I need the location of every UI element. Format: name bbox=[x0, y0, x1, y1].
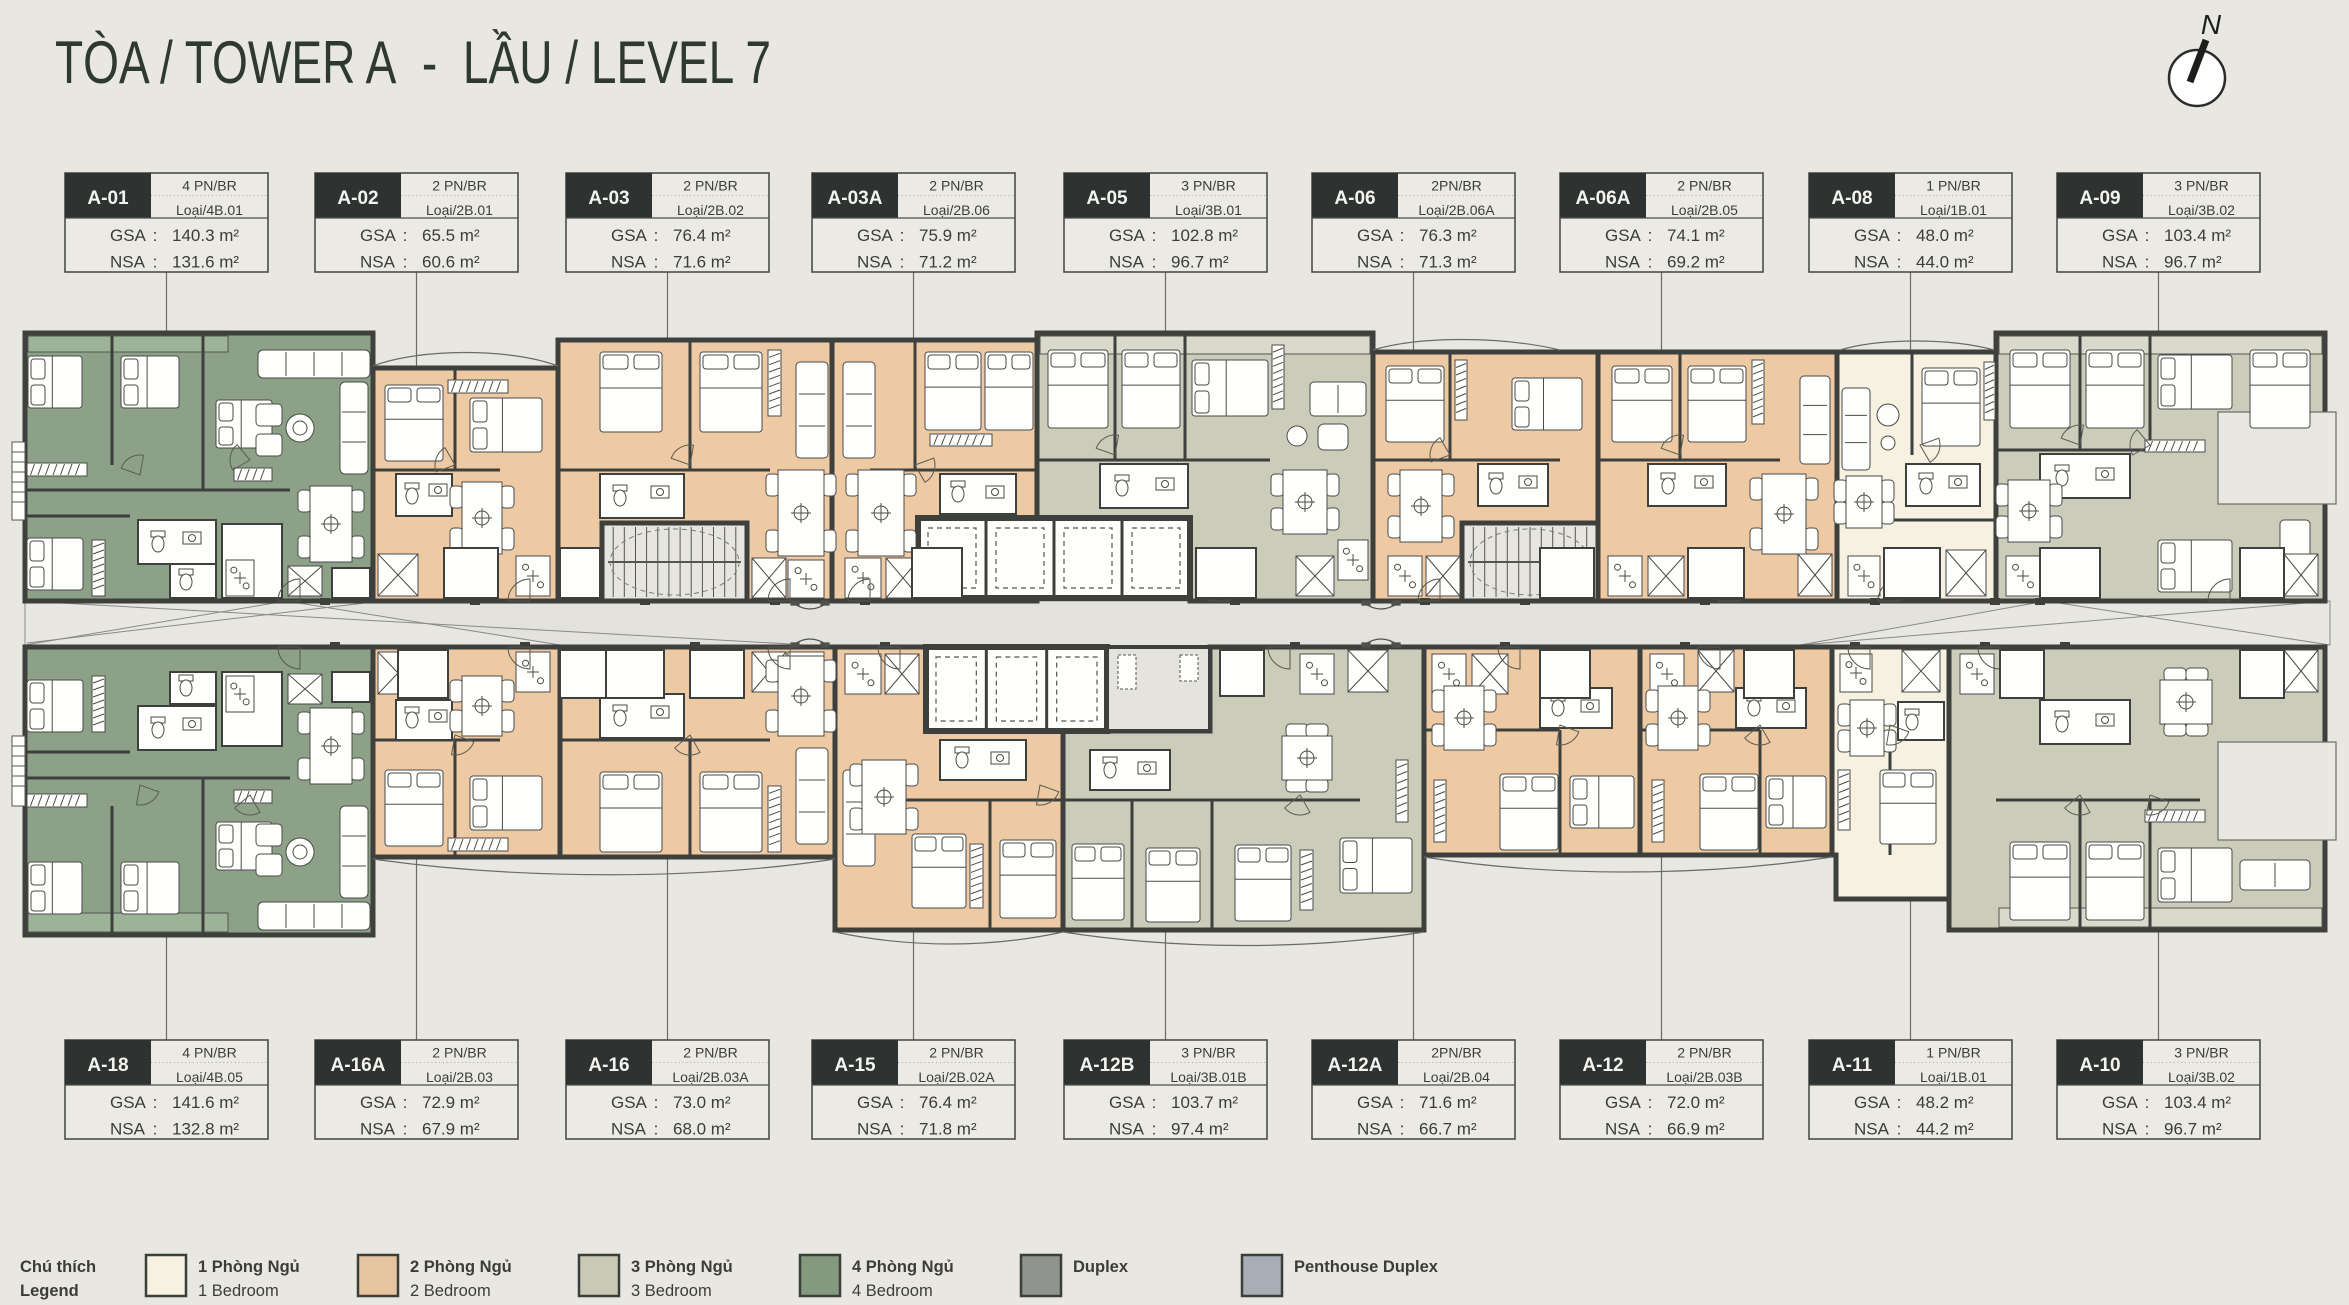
svg-text:NSA: NSA bbox=[2102, 253, 2138, 272]
svg-text:2 PN/BR: 2 PN/BR bbox=[1677, 178, 1731, 194]
svg-text:3 Bedroom: 3 Bedroom bbox=[631, 1282, 712, 1300]
svg-text:NSA: NSA bbox=[1854, 1120, 1890, 1139]
svg-text:72.9 m²: 72.9 m² bbox=[422, 1093, 480, 1112]
svg-text::: : bbox=[1897, 1120, 1902, 1139]
svg-text::: : bbox=[900, 1120, 905, 1139]
svg-text:NSA: NSA bbox=[1357, 1120, 1393, 1139]
svg-text::: : bbox=[1897, 1093, 1902, 1112]
svg-text::: : bbox=[403, 1093, 408, 1112]
svg-text:74.1 m²: 74.1 m² bbox=[1667, 226, 1725, 245]
svg-text:71.2 m²: 71.2 m² bbox=[919, 253, 977, 272]
svg-text:66.9 m²: 66.9 m² bbox=[1667, 1120, 1725, 1139]
svg-text:NSA: NSA bbox=[360, 253, 396, 272]
svg-text::: : bbox=[654, 1093, 659, 1112]
svg-text:3 PN/BR: 3 PN/BR bbox=[1181, 178, 1235, 194]
svg-text:44.0 m²: 44.0 m² bbox=[1916, 253, 1974, 272]
svg-text:NSA: NSA bbox=[857, 253, 893, 272]
svg-text:GSA: GSA bbox=[1605, 1093, 1642, 1112]
svg-text::: : bbox=[654, 1120, 659, 1139]
svg-text:4 PN/BR: 4 PN/BR bbox=[182, 178, 236, 194]
svg-text::: : bbox=[1400, 253, 1405, 272]
svg-text:Loại/1B.01: Loại/1B.01 bbox=[1920, 1069, 1987, 1085]
svg-text:2 PN/BR: 2 PN/BR bbox=[683, 1045, 737, 1061]
svg-text:Penthouse Duplex: Penthouse Duplex bbox=[1294, 1258, 1439, 1276]
svg-text::: : bbox=[1648, 1093, 1653, 1112]
svg-text:A-12B: A-12B bbox=[1080, 1055, 1135, 1076]
svg-text:A-12A: A-12A bbox=[1328, 1055, 1383, 1076]
svg-text::: : bbox=[2145, 1120, 2150, 1139]
svg-text:2PN/BR: 2PN/BR bbox=[1431, 178, 1482, 194]
svg-text:A-12: A-12 bbox=[1582, 1055, 1623, 1076]
svg-text:A-06A: A-06A bbox=[1576, 188, 1631, 209]
svg-text:GSA: GSA bbox=[1854, 1093, 1891, 1112]
svg-text:Loại/2B.06: Loại/2B.06 bbox=[923, 202, 990, 218]
svg-text:NSA: NSA bbox=[360, 1120, 396, 1139]
svg-text:72.0 m²: 72.0 m² bbox=[1667, 1093, 1725, 1112]
svg-text:NSA: NSA bbox=[611, 1120, 647, 1139]
svg-text::: : bbox=[2145, 253, 2150, 272]
svg-text:A-15: A-15 bbox=[834, 1055, 876, 1076]
svg-text::: : bbox=[403, 253, 408, 272]
svg-text::: : bbox=[1400, 1093, 1405, 1112]
svg-text:NSA: NSA bbox=[1109, 1120, 1145, 1139]
svg-text:GSA: GSA bbox=[857, 1093, 894, 1112]
svg-text:2 Bedroom: 2 Bedroom bbox=[410, 1282, 491, 1300]
svg-text:103.4 m²: 103.4 m² bbox=[2164, 1093, 2231, 1112]
svg-text:140.3 m²: 140.3 m² bbox=[172, 226, 239, 245]
svg-text:60.6 m²: 60.6 m² bbox=[422, 253, 480, 272]
svg-text:131.6 m²: 131.6 m² bbox=[172, 253, 239, 272]
svg-text:Duplex: Duplex bbox=[1073, 1258, 1129, 1276]
svg-text:66.7 m²: 66.7 m² bbox=[1419, 1120, 1477, 1139]
svg-text:2 PN/BR: 2 PN/BR bbox=[683, 178, 737, 194]
svg-text:Loại/2B.03: Loại/2B.03 bbox=[426, 1069, 493, 1085]
svg-text:A-16A: A-16A bbox=[331, 1055, 386, 1076]
svg-text:102.8 m²: 102.8 m² bbox=[1171, 226, 1238, 245]
svg-text:48.0 m²: 48.0 m² bbox=[1916, 226, 1974, 245]
svg-text:Loại/2B.01: Loại/2B.01 bbox=[426, 202, 493, 218]
svg-text:GSA: GSA bbox=[2102, 1093, 2139, 1112]
svg-text:A-03: A-03 bbox=[588, 188, 629, 209]
svg-text:A-06: A-06 bbox=[1334, 188, 1375, 209]
svg-text:2PN/BR: 2PN/BR bbox=[1431, 1045, 1482, 1061]
svg-text::: : bbox=[403, 226, 408, 245]
svg-text::: : bbox=[900, 253, 905, 272]
svg-text::: : bbox=[654, 253, 659, 272]
svg-text:Loại/2B.06A: Loại/2B.06A bbox=[1418, 202, 1495, 218]
svg-text:Loại/4B.01: Loại/4B.01 bbox=[176, 202, 243, 218]
svg-text:69.2 m²: 69.2 m² bbox=[1667, 253, 1725, 272]
svg-text:71.8 m²: 71.8 m² bbox=[919, 1120, 977, 1139]
svg-text::: : bbox=[1152, 226, 1157, 245]
svg-text:NSA: NSA bbox=[110, 1120, 146, 1139]
svg-text::: : bbox=[900, 1093, 905, 1112]
svg-text::: : bbox=[1648, 253, 1653, 272]
svg-text::: : bbox=[153, 226, 158, 245]
svg-text::: : bbox=[2145, 1093, 2150, 1112]
svg-text:2 PN/BR: 2 PN/BR bbox=[1677, 1045, 1731, 1061]
svg-text:A-11: A-11 bbox=[1832, 1055, 1873, 1076]
svg-text:GSA: GSA bbox=[2102, 226, 2139, 245]
svg-text:76.4 m²: 76.4 m² bbox=[673, 226, 731, 245]
svg-text:Loại/4B.05: Loại/4B.05 bbox=[176, 1069, 243, 1085]
svg-text:GSA: GSA bbox=[857, 226, 894, 245]
svg-text:3 Phòng Ngủ: 3 Phòng Ngủ bbox=[631, 1258, 733, 1276]
svg-text:97.4 m²: 97.4 m² bbox=[1171, 1120, 1229, 1139]
svg-text::: : bbox=[1152, 1093, 1157, 1112]
svg-text:Loại/2B.05: Loại/2B.05 bbox=[1671, 202, 1738, 218]
svg-text::: : bbox=[403, 1120, 408, 1139]
svg-text:2 Phòng Ngủ: 2 Phòng Ngủ bbox=[410, 1258, 512, 1276]
svg-text:GSA: GSA bbox=[611, 1093, 648, 1112]
svg-text:GSA: GSA bbox=[611, 226, 648, 245]
svg-text:A-18: A-18 bbox=[87, 1055, 128, 1076]
svg-text:Loại/3B.01B: Loại/3B.01B bbox=[1170, 1069, 1246, 1085]
svg-text:Loại/2B.04: Loại/2B.04 bbox=[1423, 1069, 1490, 1085]
svg-text:NSA: NSA bbox=[2102, 1120, 2138, 1139]
svg-text:N: N bbox=[2201, 9, 2222, 40]
svg-text:103.4 m²: 103.4 m² bbox=[2164, 226, 2231, 245]
svg-text:3 PN/BR: 3 PN/BR bbox=[2174, 1045, 2228, 1061]
svg-text:Loại/2B.02A: Loại/2B.02A bbox=[918, 1069, 995, 1085]
svg-text:NSA: NSA bbox=[1605, 1120, 1641, 1139]
svg-text:103.7 m²: 103.7 m² bbox=[1171, 1093, 1238, 1112]
svg-text:Loại/2B.03B: Loại/2B.03B bbox=[1666, 1069, 1742, 1085]
svg-text:71.3 m²: 71.3 m² bbox=[1419, 253, 1477, 272]
svg-text:GSA: GSA bbox=[360, 1093, 397, 1112]
svg-text:76.3 m²: 76.3 m² bbox=[1419, 226, 1477, 245]
svg-text:NSA: NSA bbox=[1854, 253, 1890, 272]
svg-text:2 PN/BR: 2 PN/BR bbox=[432, 178, 486, 194]
svg-text:A-05: A-05 bbox=[1086, 188, 1128, 209]
svg-text:44.2 m²: 44.2 m² bbox=[1916, 1120, 1974, 1139]
svg-text:1 Phòng Ngủ: 1 Phòng Ngủ bbox=[198, 1258, 300, 1276]
svg-text:A-10: A-10 bbox=[2079, 1055, 2120, 1076]
svg-text:Chú thích: Chú thích bbox=[20, 1258, 96, 1276]
svg-text:GSA: GSA bbox=[360, 226, 397, 245]
svg-text:73.0 m²: 73.0 m² bbox=[673, 1093, 731, 1112]
svg-text:GSA: GSA bbox=[110, 1093, 147, 1112]
svg-text:67.9 m²: 67.9 m² bbox=[422, 1120, 480, 1139]
svg-text:Loại/3B.02: Loại/3B.02 bbox=[2168, 1069, 2235, 1085]
svg-text:4 Bedroom: 4 Bedroom bbox=[852, 1282, 933, 1300]
svg-text::: : bbox=[1648, 226, 1653, 245]
svg-text:76.4 m²: 76.4 m² bbox=[919, 1093, 977, 1112]
svg-text:GSA: GSA bbox=[1357, 226, 1394, 245]
svg-text:4 Phòng Ngủ: 4 Phòng Ngủ bbox=[852, 1258, 954, 1276]
svg-text:96.7 m²: 96.7 m² bbox=[2164, 1120, 2222, 1139]
svg-text:NSA: NSA bbox=[1357, 253, 1393, 272]
svg-text:A-02: A-02 bbox=[337, 188, 378, 209]
svg-text:NSA: NSA bbox=[1109, 253, 1145, 272]
svg-text:NSA: NSA bbox=[611, 253, 647, 272]
svg-text:Loại/2B.02: Loại/2B.02 bbox=[677, 202, 744, 218]
svg-text::: : bbox=[1152, 1120, 1157, 1139]
svg-text:3 PN/BR: 3 PN/BR bbox=[1181, 1045, 1235, 1061]
svg-text::: : bbox=[1152, 253, 1157, 272]
svg-text:Loại/2B.03A: Loại/2B.03A bbox=[672, 1069, 749, 1085]
svg-text:2 PN/BR: 2 PN/BR bbox=[929, 1045, 983, 1061]
svg-text:132.8 m²: 132.8 m² bbox=[172, 1120, 239, 1139]
svg-text:75.9 m²: 75.9 m² bbox=[919, 226, 977, 245]
svg-text:GSA: GSA bbox=[1854, 226, 1891, 245]
svg-text:NSA: NSA bbox=[1605, 253, 1641, 272]
svg-text:A-09: A-09 bbox=[2079, 188, 2120, 209]
svg-text:Loại/1B.01: Loại/1B.01 bbox=[1920, 202, 1987, 218]
svg-text:48.2 m²: 48.2 m² bbox=[1916, 1093, 1974, 1112]
svg-text::: : bbox=[900, 226, 905, 245]
svg-text:141.6 m²: 141.6 m² bbox=[172, 1093, 239, 1112]
svg-text::: : bbox=[654, 226, 659, 245]
svg-text:71.6 m²: 71.6 m² bbox=[673, 253, 731, 272]
svg-text::: : bbox=[1648, 1120, 1653, 1139]
svg-text:A-16: A-16 bbox=[588, 1055, 629, 1076]
svg-text:Legend: Legend bbox=[20, 1282, 79, 1300]
svg-text:1 PN/BR: 1 PN/BR bbox=[1926, 1045, 1980, 1061]
svg-text::: : bbox=[1400, 226, 1405, 245]
svg-text:1 PN/BR: 1 PN/BR bbox=[1926, 178, 1980, 194]
svg-text:GSA: GSA bbox=[1357, 1093, 1394, 1112]
svg-text::: : bbox=[153, 1093, 158, 1112]
svg-text:NSA: NSA bbox=[857, 1120, 893, 1139]
svg-text:4 PN/BR: 4 PN/BR bbox=[182, 1045, 236, 1061]
svg-text:71.6 m²: 71.6 m² bbox=[1419, 1093, 1477, 1112]
svg-text::: : bbox=[153, 253, 158, 272]
svg-text::: : bbox=[1400, 1120, 1405, 1139]
svg-text:GSA: GSA bbox=[1605, 226, 1642, 245]
svg-text:65.5 m²: 65.5 m² bbox=[422, 226, 480, 245]
svg-text:NSA: NSA bbox=[110, 253, 146, 272]
svg-text:68.0 m²: 68.0 m² bbox=[673, 1120, 731, 1139]
svg-text:GSA: GSA bbox=[1109, 1093, 1146, 1112]
svg-text:2 PN/BR: 2 PN/BR bbox=[432, 1045, 486, 1061]
svg-text:TÒA / TOWER A - LẦU / LEVEL: TÒA / TOWER A - LẦU / LEVEL 7 bbox=[55, 29, 771, 96]
svg-text:3 PN/BR: 3 PN/BR bbox=[2174, 178, 2228, 194]
svg-text::: : bbox=[1897, 226, 1902, 245]
svg-text:A-01: A-01 bbox=[87, 188, 129, 209]
svg-text:GSA: GSA bbox=[1109, 226, 1146, 245]
svg-text:2 PN/BR: 2 PN/BR bbox=[929, 178, 983, 194]
svg-text::: : bbox=[1897, 253, 1902, 272]
svg-text:Loại/3B.02: Loại/3B.02 bbox=[2168, 202, 2235, 218]
svg-text:96.7 m²: 96.7 m² bbox=[1171, 253, 1229, 272]
svg-text:GSA: GSA bbox=[110, 226, 147, 245]
svg-text::: : bbox=[2145, 226, 2150, 245]
svg-text:96.7 m²: 96.7 m² bbox=[2164, 253, 2222, 272]
svg-text:A-03A: A-03A bbox=[828, 188, 883, 209]
svg-text:1 Bedroom: 1 Bedroom bbox=[198, 1282, 279, 1300]
svg-text:Loại/3B.01: Loại/3B.01 bbox=[1175, 202, 1242, 218]
svg-text::: : bbox=[153, 1120, 158, 1139]
svg-text:A-08: A-08 bbox=[1831, 188, 1872, 209]
